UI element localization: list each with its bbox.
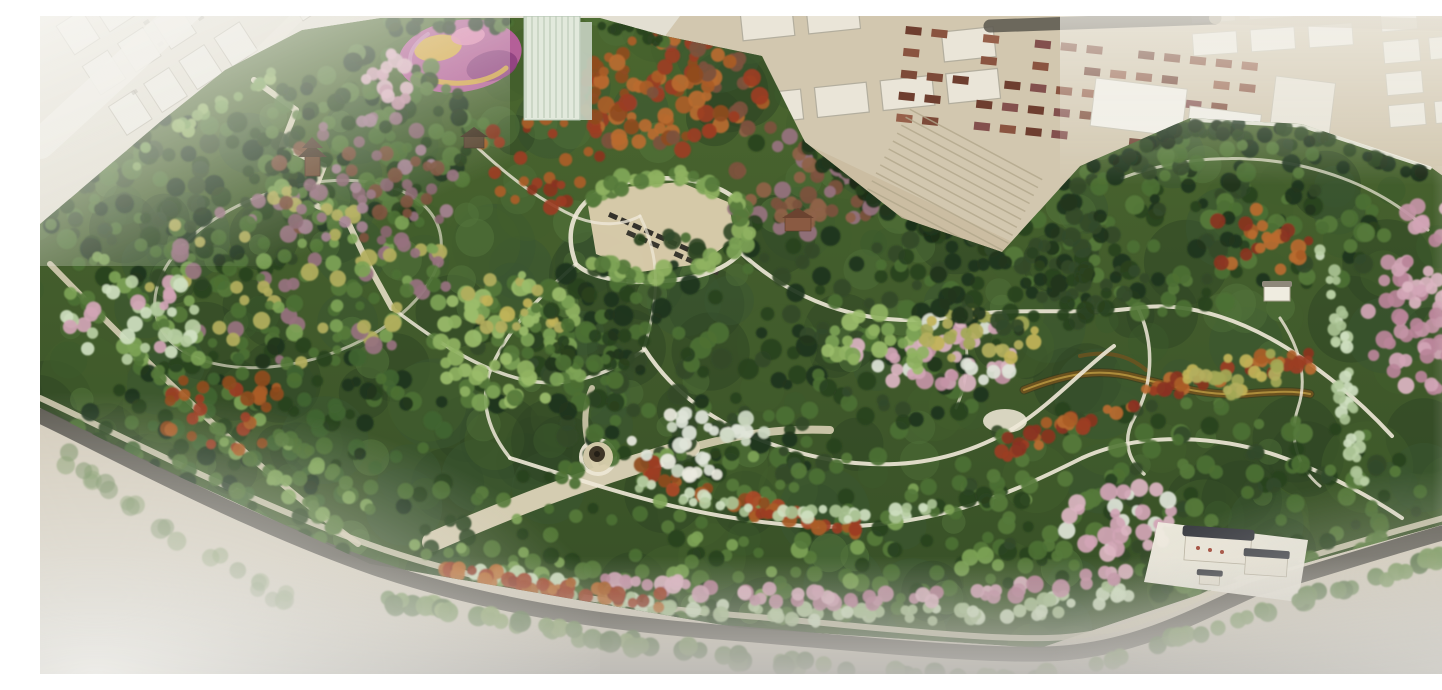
glass-tower-side xyxy=(580,22,592,120)
fog-top-right xyxy=(1060,16,1442,186)
fog-bottom-right xyxy=(1000,446,1442,674)
east-pavilion-roof xyxy=(1262,281,1292,287)
center-pavilion xyxy=(785,216,811,231)
fog-top-left xyxy=(40,16,510,266)
fog-bottom-left xyxy=(40,376,600,674)
fog-right-edge xyxy=(1432,166,1442,526)
scene-svg xyxy=(40,16,1442,674)
park-aerial-rendering: Aerial rendering of an urban park master… xyxy=(40,16,1442,674)
